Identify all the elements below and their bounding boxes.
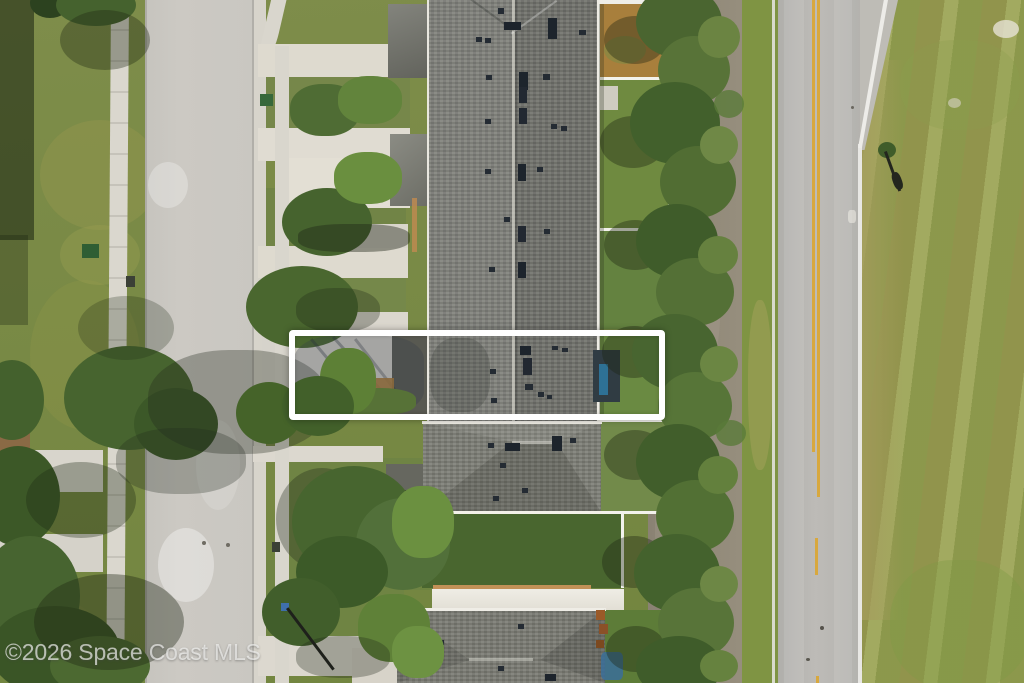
bottom-roof-ridge	[469, 658, 533, 661]
roof-vent	[488, 443, 494, 448]
road-tire-lane	[784, 0, 804, 683]
roof-ridge-shadow	[515, 0, 517, 424]
skylight	[518, 226, 526, 242]
tree-canopy	[714, 90, 744, 118]
roof-vent	[485, 169, 491, 174]
street-wear-patch	[148, 162, 188, 208]
skylight	[518, 164, 526, 181]
tree-canopy	[282, 376, 354, 436]
road-debris-dot	[851, 106, 854, 109]
aerial-scene	[0, 0, 1024, 683]
fence-white	[597, 419, 669, 422]
roof-vent	[579, 30, 586, 35]
tree-canopy	[700, 566, 738, 602]
tree-shadow	[78, 296, 174, 360]
tree-shadow	[298, 224, 410, 252]
roof-vent	[485, 38, 491, 43]
roof-vent	[562, 348, 568, 352]
mls-watermark: ©2026 Space Coast MLS	[5, 639, 261, 666]
road-yellow-dash	[815, 538, 818, 575]
tree-shadow-band	[0, 235, 28, 325]
roof-vent	[491, 398, 497, 403]
skylight	[552, 436, 562, 451]
palm-cluster	[334, 152, 402, 204]
trash-bin	[126, 276, 135, 287]
aerial-photo: ©2026 Space Coast MLS	[0, 0, 1024, 683]
roof-vent	[543, 74, 550, 80]
roof-wing-shade	[388, 4, 430, 78]
road-tire-lane	[834, 0, 852, 683]
garage-wall-accent	[412, 198, 417, 252]
tree-canopy	[698, 236, 738, 274]
roof-vent	[485, 119, 491, 124]
tree-canopy	[700, 346, 738, 382]
roof-vent	[561, 126, 567, 131]
tree-canopy	[716, 420, 746, 446]
roof-vent	[518, 624, 524, 629]
tree-shadow	[116, 428, 246, 494]
rust-vent	[596, 640, 604, 648]
skylight	[504, 22, 521, 30]
road-centerline-yellow	[817, 0, 820, 497]
palm-cluster	[392, 626, 444, 678]
field-sand-patch	[948, 98, 961, 108]
road-edge-line-right	[858, 144, 862, 683]
road-marking-white	[848, 210, 856, 223]
lawn-dry-patch	[40, 120, 160, 230]
roof-vent	[486, 75, 492, 80]
tree-shadow	[296, 288, 380, 332]
mid-roof-gutter	[422, 421, 602, 424]
roof-vent	[544, 229, 550, 234]
skylight	[519, 108, 527, 124]
roof-vent	[537, 167, 543, 172]
roof-vent	[498, 666, 504, 671]
verge-dry-patch	[748, 300, 772, 470]
tree-shadow-band	[0, 0, 34, 240]
roof-vent	[551, 124, 557, 129]
skylight	[545, 674, 556, 681]
utility-box-small	[272, 542, 280, 552]
manhole-dot	[226, 543, 230, 547]
road-debris-dot	[820, 626, 824, 630]
field-sand-patch	[993, 20, 1019, 38]
road-yellow-dash	[816, 676, 819, 683]
skylight	[505, 443, 520, 451]
skylight	[548, 18, 557, 39]
skylight	[520, 346, 531, 355]
road-edge-line-left	[772, 0, 775, 683]
roof-vent	[552, 346, 558, 350]
roof-vent	[476, 37, 482, 42]
roof-vent	[525, 384, 533, 390]
roof-vent	[570, 438, 576, 443]
tree-canopy	[698, 456, 738, 494]
lanai-roof-white	[432, 589, 624, 610]
lanai-pool	[599, 364, 608, 395]
roof-vent	[547, 395, 552, 399]
skylight	[519, 87, 527, 103]
roof-vent	[538, 392, 544, 397]
skylight	[523, 358, 532, 375]
roof-vent	[500, 463, 506, 468]
utility-box-green	[82, 244, 99, 258]
roof-vent	[498, 8, 504, 14]
tree-canopy	[698, 16, 740, 58]
roof-vent	[489, 267, 495, 272]
roof-eave-gutter	[427, 0, 429, 424]
roof-vent	[504, 217, 510, 222]
field-green-patch	[900, 40, 1020, 130]
rust-vent	[596, 610, 605, 620]
roof-vent	[490, 369, 496, 374]
road-centerline-yellow	[812, 0, 815, 452]
tree-canopy	[700, 650, 738, 682]
roof-vent	[522, 488, 528, 493]
roof-vent	[493, 496, 499, 501]
tree-shadow-on-roof	[430, 338, 490, 412]
utility-box-green	[260, 94, 273, 106]
rust-vent	[599, 624, 608, 634]
palm-cluster	[338, 76, 402, 124]
tree-canopy	[700, 126, 738, 164]
skylight	[518, 262, 526, 278]
road-debris-dot	[806, 658, 810, 661]
bottom-roof-eave	[396, 608, 606, 611]
tree-shadow	[60, 10, 150, 70]
field-green-patch	[890, 560, 1024, 683]
manhole-dot	[202, 541, 206, 545]
palm-cluster	[392, 486, 454, 558]
